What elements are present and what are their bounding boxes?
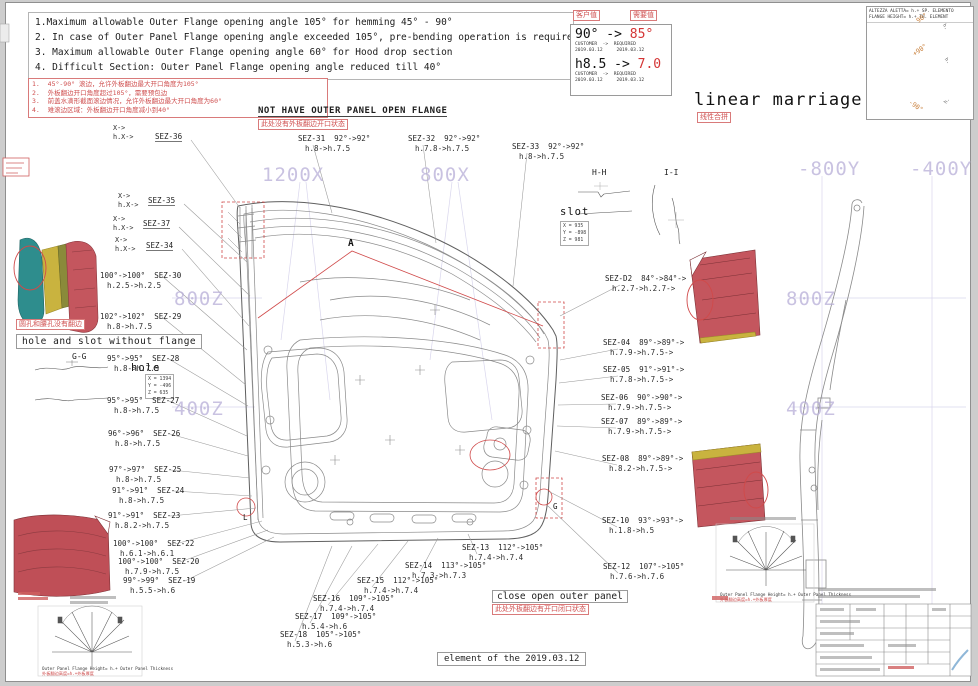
sez-text: h.7.5 [137, 406, 160, 415]
sez-text: 91° [131, 511, 145, 520]
sez-label-sez-30: 100°->100° SEZ-30h.2.5->h.2.5 [100, 271, 181, 290]
sez-text: 89°-> [662, 338, 685, 347]
sez-text: h.8-> [114, 406, 137, 415]
sez-text: h.7.4 [396, 586, 419, 595]
slot-z: Z = 981 [563, 238, 583, 243]
hole-y: Y = -496 [148, 384, 171, 389]
section-hh-label: H-H [592, 168, 606, 177]
sez-text: 96°-> [108, 429, 131, 438]
sez-text: SEZ-36 [155, 132, 182, 142]
sez-label-sez-36: SEZ-36 [155, 132, 182, 142]
sez-text: h.2.5 [139, 281, 162, 290]
note-line-4: 4. Difficult Section: Outer Panel Flange… [35, 62, 441, 73]
micro-text-bar [730, 517, 796, 520]
micro-text-bar [820, 620, 860, 623]
sez-text: SEZ-16 [313, 594, 340, 603]
sez-text: h.7.5 [138, 439, 161, 448]
sez-text: h.8-> [116, 475, 139, 484]
fan-caption-left: Outer Panel Flange Height= h.+ Outer Pan… [42, 666, 173, 676]
note-line-3: 3. Maximum allowable Outer Flange openin… [35, 47, 453, 58]
sez-text: h.7.9-> [610, 348, 642, 357]
sez-text: h.8-> [114, 364, 137, 373]
sez-text: SEZ-13 [462, 543, 489, 552]
grid-label-800z: 800Z [174, 288, 224, 310]
angle-old: 90° [575, 27, 598, 42]
x-arrow-line: h.X-> [113, 133, 133, 142]
note-cn-2: 2. 外板翻边开口角度超过105°，需要预包边 [32, 89, 167, 97]
grid-label--800y: -800Y [798, 158, 860, 180]
sez-text: h.7.5-> [640, 403, 672, 412]
sez-text: h.7.3-> [412, 571, 444, 580]
sez-text: 97°-> [109, 465, 132, 474]
sez-text: SEZ-06 [601, 393, 628, 402]
angle-new: 85° [630, 27, 653, 42]
sez-text: 102° [127, 312, 145, 321]
sez-label-sez-26: 96°->96° SEZ-26h.8->h.7.5 [108, 429, 180, 448]
sez-text: SEZ-29 [154, 312, 181, 321]
sez-text: 91° [135, 486, 149, 495]
sez-text: 105° [376, 594, 394, 603]
sez-text: 89°-> [660, 417, 683, 426]
sez-label-sez-23: 91°->91° SEZ-23h.8.2->h.7.5 [108, 511, 180, 530]
sez-text: SEZ-05 [603, 365, 630, 374]
sez-text: h.6 [334, 622, 348, 631]
sez-text: h.8-> [115, 439, 138, 448]
sez-text: h.7.5 [157, 567, 180, 576]
sez-label-sez-12: SEZ-12 107°->105°h.7.6->h.7.6 [603, 562, 684, 581]
hole-slot-title: hole and slot without flange [16, 334, 202, 349]
x-arrow-label: X->h.X-> [113, 124, 133, 141]
x-arrow-line: X-> [113, 124, 133, 133]
sez-text: h.7.5 [130, 322, 153, 331]
micro-text-bar [18, 592, 40, 595]
x-arrow-line: X-> [115, 236, 135, 245]
sez-text: SEZ-07 [601, 417, 628, 426]
sez-text: SEZ-24 [157, 486, 184, 495]
sez-text: h.2.7-> [612, 284, 644, 293]
grid-label-1200x: 1200X [262, 164, 324, 186]
micro-text-bar [18, 597, 48, 600]
sez-text: 105° [358, 612, 376, 621]
sez-text: h.7.5 [142, 496, 165, 505]
grid-label-400z: 400Z [786, 398, 836, 420]
sez-text: 84°-> [641, 274, 664, 283]
sez-text: h.5.5-> [130, 586, 162, 595]
sez-text: SEZ-12 [603, 562, 630, 571]
sez-text: h.7.5-> [642, 375, 674, 384]
sez-text: h.8-> [119, 496, 142, 505]
marker-l: L [243, 513, 248, 522]
sez-label-sez-25: 97°->97° SEZ-25h.8->h.7.5 [109, 465, 181, 484]
sez-label-sez-27: 95°->95° SEZ-27h.8->h.7.5 [107, 396, 179, 415]
note-cn-4: 4. 难滚边区域：外板翻边开口角度减小到40° [32, 106, 170, 114]
micro-text-bar [712, 596, 728, 600]
height-arrow: -> [606, 57, 637, 72]
slot-coordinates: X = 935 Y = -898 Z = 981 [560, 221, 589, 246]
sez-text: 112°-> [498, 543, 525, 552]
sez-text: 100° [140, 539, 158, 548]
micro-text-bar [820, 668, 880, 671]
sez-text: 89°-> [638, 454, 661, 463]
sez-text: 113°-> [441, 561, 468, 570]
sez-label-sez-33: SEZ-33 92°->92°h.8->h.7.5 [512, 142, 584, 161]
micro-text-bar [820, 632, 854, 635]
sez-text: 105° [666, 562, 684, 571]
sez-text: 102°-> [100, 312, 127, 321]
sez-text: h.6 [162, 586, 176, 595]
tag-customer-value: 客户值 [573, 10, 600, 21]
sez-text: SEZ-17 [295, 612, 322, 621]
sez-text: 105° [525, 543, 543, 552]
sez-label-sez-16: SEZ-16 109°->105°h.7.4->h.7.4 [313, 594, 394, 613]
sez-text: 95° [130, 354, 144, 363]
micro-text-bar [70, 601, 108, 604]
sez-text: h.7.3 [444, 571, 467, 580]
sez-text: 89°-> [637, 417, 660, 426]
sez-text: SEZ-34 [146, 241, 173, 251]
sez-text: h.7.4-> [364, 586, 396, 595]
sez-text: h.8.2-> [609, 464, 641, 473]
sez-text: SEZ-32 [408, 134, 435, 143]
sez-text: 99° [146, 576, 160, 585]
height-old: h8.5 [575, 57, 606, 72]
sez-text: SEZ-30 [154, 271, 181, 280]
micro-text-bar [932, 608, 946, 611]
sez-text: h.5 [641, 526, 655, 535]
x-arrow-label: X->h.X-> [113, 215, 133, 232]
legend-line-1: ALTEZZA ALETTA= h.+ SP. ELEMENTO [869, 9, 954, 14]
sez-label-sez-34: SEZ-34 [146, 241, 173, 251]
legend-line-2: FLANGE HEIGHT= h.+ TH. ELEMENT [869, 15, 948, 20]
sez-text: 105° [468, 561, 486, 570]
sez-text: h.7.4 [501, 553, 524, 562]
x-arrow-label: X->h.X-> [118, 192, 138, 209]
sez-text: SEZ-14 [405, 561, 432, 570]
grid-label-400z: 400Z [174, 398, 224, 420]
sez-text: 92° [467, 134, 481, 143]
sez-text: h.7.5-> [640, 427, 672, 436]
sez-text: SEZ-35 [148, 196, 175, 206]
sez-text: 92° [357, 134, 371, 143]
sez-label-sez-13: SEZ-13 112°->105°h.7.4->h.7.4 [462, 543, 543, 562]
sez-text: SEZ-04 [603, 338, 630, 347]
sez-text: 91°-> [639, 365, 662, 374]
hole-x: X = 1394 [148, 377, 171, 382]
sez-text: h.6 [319, 640, 333, 649]
note-cn-3: 3. 前盖水滴形截面滚边情况，允许外板翻边最大开口角度为60° [32, 97, 222, 105]
sez-text: h.8-> [519, 152, 542, 161]
micro-text-bar [818, 595, 920, 598]
tag-required-value: 需要值 [630, 10, 657, 21]
sez-text: h.2.5-> [107, 281, 139, 290]
x-arrow-line: h.X-> [113, 224, 133, 233]
sez-text: h.5.3-> [287, 640, 319, 649]
sez-text: 91°-> [112, 486, 135, 495]
x-arrow-line: X-> [113, 215, 133, 224]
sez-text: h.7.5 [137, 364, 160, 373]
sez-label-sez-28: 95°->95° SEZ-28h.8->h.7.5 [107, 354, 179, 373]
sez-text: 105° [343, 630, 361, 639]
micro-text-bar [820, 608, 844, 611]
sez-label-sez-06: SEZ-06 90°->90°->h.7.9->h.7.5-> [601, 393, 682, 412]
grid-label-800x: 800X [420, 164, 470, 186]
slot-y: Y = -898 [563, 231, 586, 236]
micro-text-bar [888, 644, 916, 647]
sez-label-sez-10: SEZ-10 93°->93°->h.1.8->h.5 [602, 516, 683, 535]
sez-text: h.7.5 [147, 521, 170, 530]
sez-text: h.7.5-> [641, 464, 673, 473]
sez-text: 92° [571, 142, 585, 151]
sez-label-sez-08: SEZ-08 89°->89°->h.8.2->h.7.5-> [602, 454, 683, 473]
sez-text: SEZ-33 [512, 142, 539, 151]
fan-caption-left-cn: 外板翻边高度=h.+外板厚度 [42, 671, 94, 676]
micro-text-bar [820, 656, 872, 659]
sez-label-sez-18: SEZ-18 105°->105°h.5.3->h.6 [280, 630, 361, 649]
sez-text: h.7.6-> [610, 572, 642, 581]
sez-text: 100°-> [113, 539, 140, 548]
sez-text: 100°-> [100, 271, 127, 280]
change-value-box: 90° -> 85° CUSTOMER -> REQUIRED 2019.03.… [570, 24, 672, 96]
sez-text: h.7.6 [642, 572, 665, 581]
micro-text-bar [70, 596, 116, 599]
sez-text: 93°-> [638, 516, 661, 525]
sez-text: h.7.4-> [469, 553, 501, 562]
sez-text: h.7.5-> [642, 348, 674, 357]
sez-label-sez-17: SEZ-17 109°->105°h.5.4->h.6 [295, 612, 376, 631]
sez-text: 95° [130, 396, 144, 405]
sez-text: 100° [145, 557, 163, 566]
sez-text: 96° [131, 429, 145, 438]
sez-text: h.2.7-> [644, 284, 676, 293]
x-arrow-line: h.X-> [115, 245, 135, 254]
x-arrow-line: h.X-> [118, 201, 138, 210]
not-have-flange-title: NOT HAVE OUTER PANEL OPEN FLANGE [258, 106, 447, 117]
angle-change: 90° -> 85° [575, 27, 667, 42]
close-open-title: close open outer panel [492, 590, 628, 603]
sez-label-sez-37: SEZ-37 [143, 219, 170, 229]
height-dates: 2019.03.12 2019.03.12 [575, 78, 667, 84]
sez-label-sez-32: SEZ-32 92°->92°h.7.8->h.7.5 [408, 134, 480, 153]
marker-a: A [348, 238, 354, 249]
sez-label-sez-22: 100°->100° SEZ-22h.6.1->h.6.1 [113, 539, 194, 558]
sez-text: SEZ-22 [167, 539, 194, 548]
linear-marriage-cn: 线性合拼 [697, 112, 731, 123]
sez-text: 93°-> [661, 516, 684, 525]
section-ii-label: I-I [664, 168, 678, 177]
grid-label--400y: -400Y [910, 158, 972, 180]
sez-text: 92°-> [548, 142, 571, 151]
sez-text: h.1.8-> [609, 526, 641, 535]
sez-text: SEZ-27 [152, 396, 179, 405]
sez-text: 97° [132, 465, 146, 474]
sez-text: 95°-> [107, 354, 130, 363]
height-new: 7.0 [638, 57, 661, 72]
sez-text: SEZ-15 [357, 576, 384, 585]
sez-label-sez-d2: SEZ-D2 84°->84°->h.2.7->h.2.7-> [605, 274, 686, 293]
marker-g: G [553, 502, 558, 511]
sez-text: 109°-> [331, 612, 358, 621]
sez-text: h.7.8-> [415, 144, 447, 153]
sez-text: 89°-> [661, 454, 684, 463]
notes-english: 1.Maximum allowable Outer Flange opening… [28, 12, 574, 80]
sez-text: 99°-> [123, 576, 146, 585]
not-have-flange-cn: 此处没有外板翻边开口状态 [258, 119, 348, 130]
sez-text: 105°-> [316, 630, 343, 639]
close-open-cn: 此处外板翻边有开口闭口状态 [492, 604, 589, 615]
sez-text: 95°-> [107, 396, 130, 405]
sez-text: 91°-> [662, 365, 685, 374]
micro-text-bar [820, 644, 864, 647]
sez-text: 109°-> [349, 594, 376, 603]
sez-text: h.7.5 [542, 152, 565, 161]
micro-text-bar [888, 666, 914, 669]
sez-text: h.7.5 [139, 475, 162, 484]
sez-text: 100° [127, 271, 145, 280]
sez-text: SEZ-23 [153, 511, 180, 520]
note-cn-1: 1. 45°-90° 滚边，允许外板翻边最大开口角度为105° [32, 80, 199, 88]
note-line-1: 1.Maximum allowable Outer Flange opening… [35, 17, 453, 28]
sez-text: h.7.5 [328, 144, 351, 153]
sez-label-sez-31: SEZ-31 92°->92°h.8->h.7.5 [298, 134, 370, 153]
sez-text: 84°-> [664, 274, 687, 283]
sez-text: SEZ-19 [168, 576, 195, 585]
linear-marriage-title: linear marriage [694, 90, 863, 110]
sez-text: 91°-> [108, 511, 131, 520]
sez-text: SEZ-D2 [605, 274, 632, 283]
sez-text: 92°-> [334, 134, 357, 143]
sez-text: h.8.2-> [115, 521, 147, 530]
angle-arrow: -> [598, 27, 629, 42]
sez-label-sez-07: SEZ-07 89°->89°->h.7.9->h.7.5-> [601, 417, 682, 436]
section-gg-label: G-G [72, 352, 86, 361]
slot-x: X = 935 [563, 224, 583, 229]
sez-label-sez-20: 100°->100° SEZ-20h.7.9->h.7.5 [118, 557, 199, 576]
sez-text: h.7.4 [352, 604, 375, 613]
x-arrow-label: X->h.X-> [115, 236, 135, 253]
sez-text: h.7.9-> [125, 567, 157, 576]
sez-text: SEZ-10 [602, 516, 629, 525]
sez-text: 89°-> [639, 338, 662, 347]
sez-label-sez-04: SEZ-04 89°->89°->h.7.9->h.7.5-> [603, 338, 684, 357]
sez-text: 107°-> [639, 562, 666, 571]
sez-label-sez-24: 91°->91° SEZ-24h.8->h.7.5 [112, 486, 184, 505]
sez-text: SEZ-31 [298, 134, 325, 143]
sez-text: h.5.4-> [302, 622, 334, 631]
sez-text: h.7.9-> [608, 427, 640, 436]
element-of-label: element of the 2019.03.12 [437, 652, 586, 666]
sez-label-sez-05: SEZ-05 91°->91°->h.7.8->h.7.5-> [603, 365, 684, 384]
sez-text: SEZ-08 [602, 454, 629, 463]
sez-label-sez-19: 99°->99° SEZ-19h.5.5->h.6 [123, 576, 195, 595]
note-line-2: 2. In case of Outer Panel Flange opening… [35, 32, 578, 43]
micro-text-bar [818, 588, 936, 591]
sez-text: h.7.8-> [610, 375, 642, 384]
slot-label: slot [560, 206, 589, 218]
sez-text: SEZ-26 [153, 429, 180, 438]
sez-text: SEZ-28 [152, 354, 179, 363]
sez-text: 100°-> [118, 557, 145, 566]
grid-label-800z: 800Z [786, 288, 836, 310]
sez-label-sez-14: SEZ-14 113°->105°h.7.3->h.7.3 [405, 561, 486, 580]
sez-text: h.8-> [305, 144, 328, 153]
micro-text-bar [856, 608, 876, 611]
sez-label-sez-29: 102°->102° SEZ-29h.8->h.7.5 [100, 312, 181, 331]
sez-text: SEZ-37 [143, 219, 170, 229]
sez-text: h.7.9-> [608, 403, 640, 412]
sez-text: SEZ-20 [172, 557, 199, 566]
sez-text: SEZ-18 [280, 630, 307, 639]
sez-text: h.7.4-> [320, 604, 352, 613]
sez-text: SEZ-25 [154, 465, 181, 474]
height-change: h8.5 -> 7.0 [575, 57, 667, 72]
cad-drawing-sheet: { "notes_en": { "l1": "1.Maximum allowab… [0, 0, 978, 686]
sez-text: 92°-> [444, 134, 467, 143]
hole-slot-cn: 圆孔和腰孔没有翻边 [16, 319, 85, 330]
sez-text: 90°-> [660, 393, 683, 402]
sez-text: h.8-> [107, 322, 130, 331]
sez-label-sez-35: SEZ-35 [148, 196, 175, 206]
angle-dates: 2019.03.12 2019.03.12 [575, 48, 667, 54]
sez-text: h.7.5 [447, 144, 470, 153]
sez-text: 90°-> [637, 393, 660, 402]
x-arrow-line: X-> [118, 192, 138, 201]
